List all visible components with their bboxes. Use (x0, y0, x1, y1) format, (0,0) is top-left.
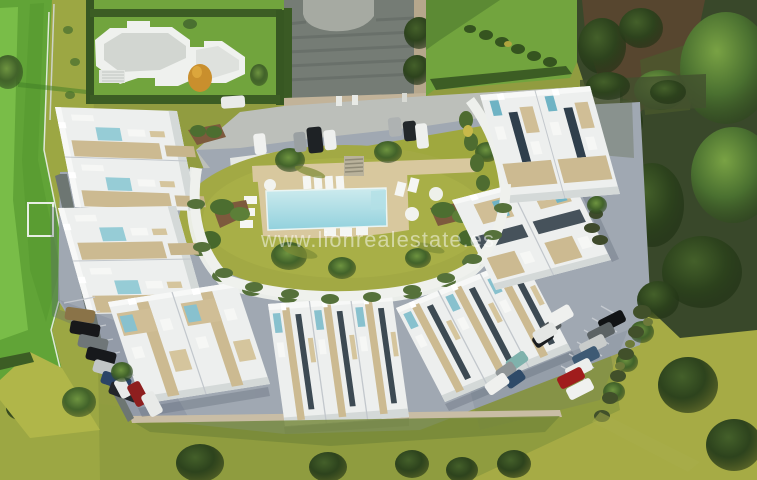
svg-text:www.lionrealestate.es: www.lionrealestate.es (260, 227, 495, 252)
